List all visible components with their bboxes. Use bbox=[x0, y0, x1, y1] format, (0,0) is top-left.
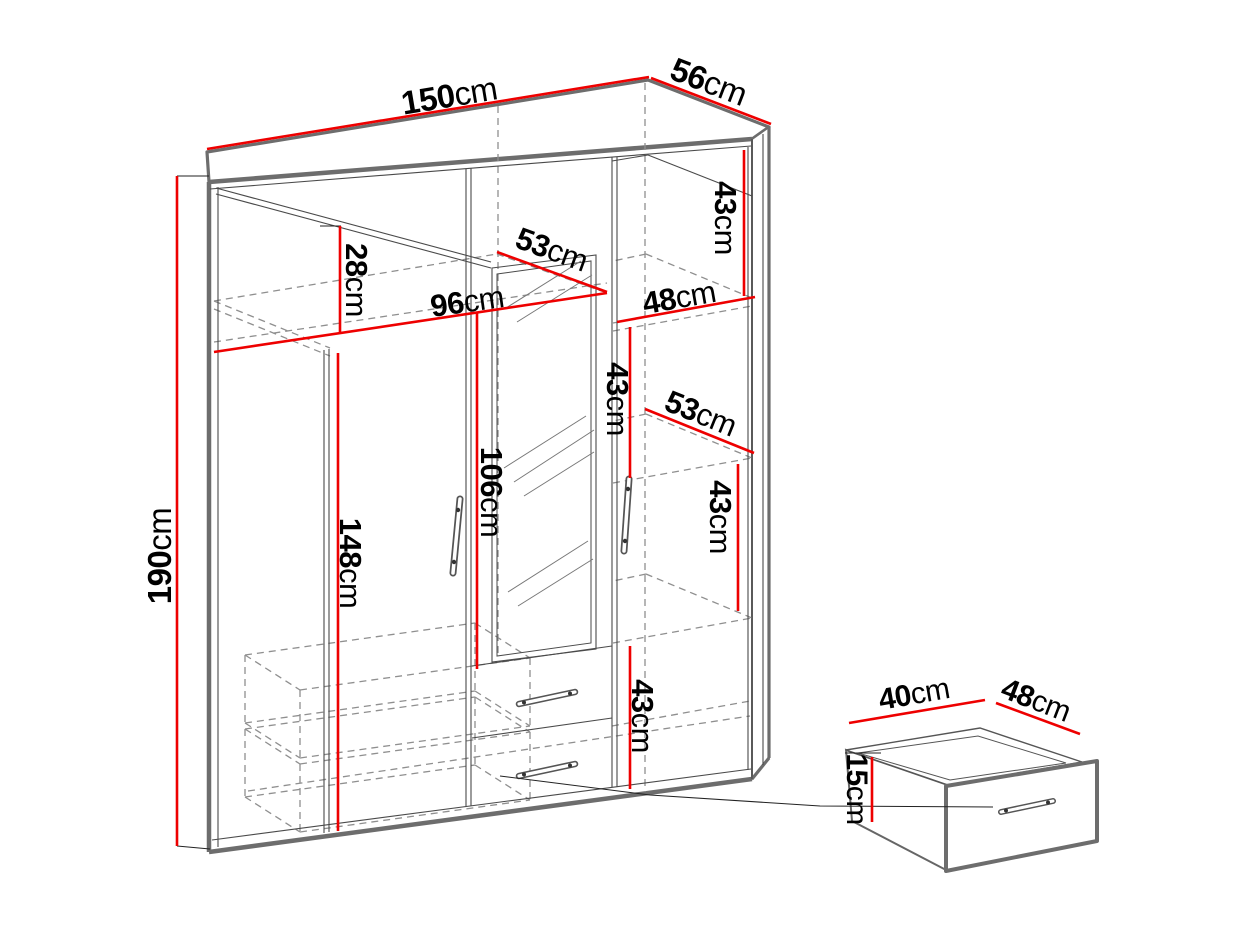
label-left-interior-height: 148cm bbox=[334, 518, 369, 609]
drawer-detail bbox=[846, 728, 1097, 871]
label-overall-height: 190cm bbox=[141, 508, 178, 605]
label-right-cubby-2: 43cm bbox=[601, 362, 636, 436]
label-right-cubby-4: 43cm bbox=[626, 679, 661, 753]
label-drawer-width: 40cm bbox=[876, 672, 952, 717]
wardrobe-side-panel bbox=[752, 127, 769, 779]
label-drawer-height: 15cm bbox=[841, 753, 874, 824]
label-right-cubby-3: 43cm bbox=[704, 480, 739, 554]
label-right-cubby-1: 43cm bbox=[709, 181, 744, 255]
label-drawer-depth: 48cm bbox=[997, 672, 1075, 728]
label-mirror-height: 106cm bbox=[475, 447, 510, 538]
label-top-shelf-height: 28cm bbox=[340, 243, 375, 317]
diagram-canvas: 150cm 56cm 190cm 28cm 96cm 53cm 48cm 43c… bbox=[0, 0, 1248, 936]
wardrobe-dimension-diagram: 150cm 56cm 190cm 28cm 96cm 53cm 48cm 43c… bbox=[0, 0, 1248, 936]
